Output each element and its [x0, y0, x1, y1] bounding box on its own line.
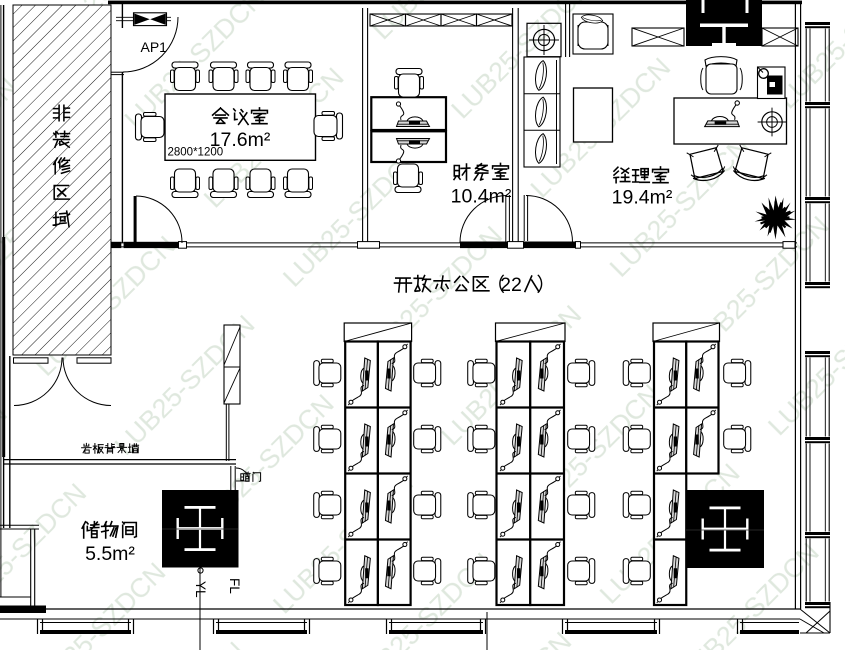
svg-text:2800*1200: 2800*1200 [168, 147, 224, 159]
svg-text:2: 2 [500, 274, 511, 296]
svg-text:5.5m²: 5.5m² [85, 543, 135, 565]
svg-text:AP1: AP1 [141, 39, 168, 55]
svg-text:19.4m²: 19.4m² [612, 187, 673, 209]
svg-text:YL: YL [193, 581, 208, 598]
svg-text:10.4m²: 10.4m² [451, 186, 512, 208]
svg-text:2: 2 [511, 274, 522, 296]
svg-text:FL: FL [227, 578, 242, 594]
svg-text:）: ） [536, 274, 556, 296]
